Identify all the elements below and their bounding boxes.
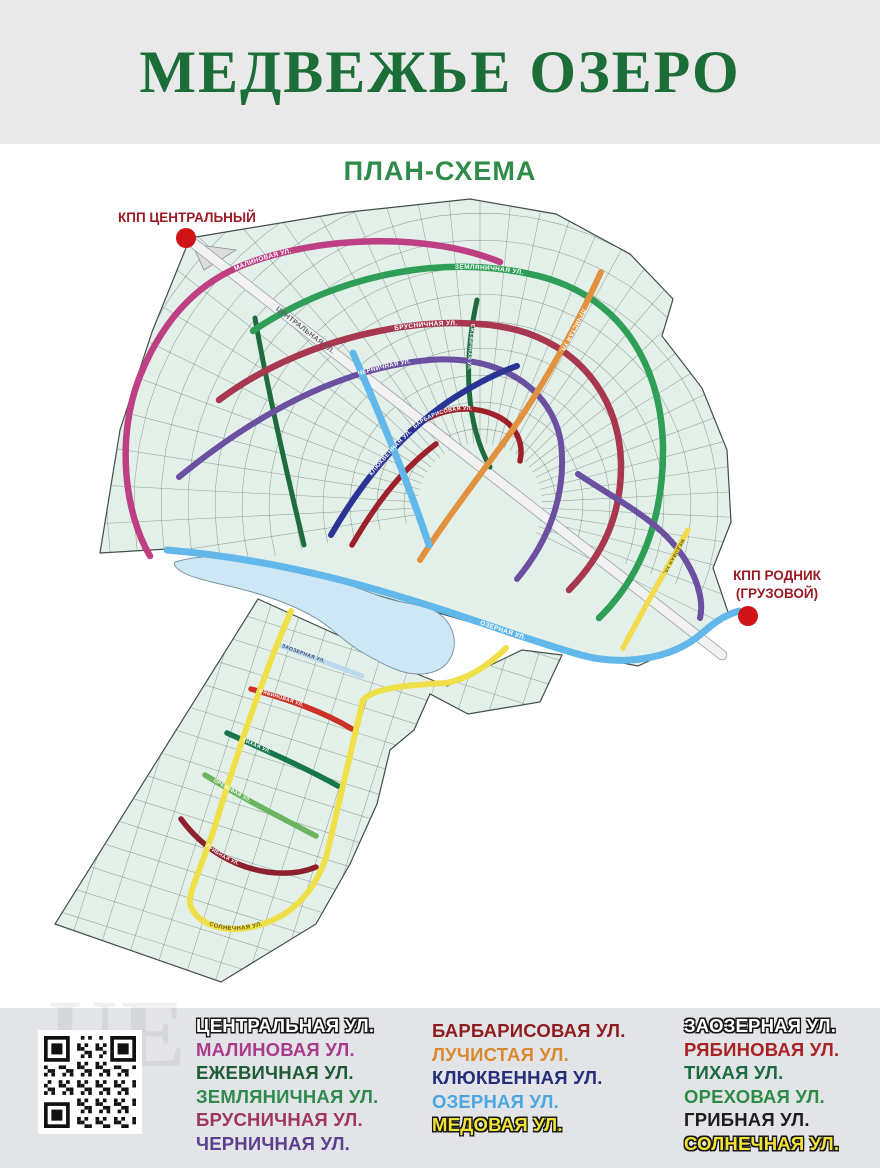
legend-item-chernichnaya: ЧЕРНИЧНАЯ УЛ. — [196, 1132, 378, 1156]
legend-item-luchistaya: ЛУЧИСТАЯ УЛ. — [432, 1043, 626, 1067]
legend-column-2: БАРБАРИСОВАЯ УЛ.ЛУЧИСТАЯ УЛ.КЛЮКВЕННАЯ У… — [432, 1019, 626, 1137]
legend-item-malinovaya: МАЛИНОВАЯ УЛ. — [196, 1038, 378, 1062]
kpp-rodnik-label-line1: КПП РОДНИК — [733, 568, 822, 583]
legend-column-3: ЗАОЗЕРНАЯ УЛ.РЯБИНОВАЯ УЛ.ТИХАЯ УЛ.ОРЕХО… — [684, 1014, 839, 1155]
qr-code — [38, 1030, 142, 1134]
legend-item-medovaya: МЕДОВАЯ УЛ. — [432, 1113, 626, 1137]
legend-item-orehovaya: ОРЕХОВАЯ УЛ. — [684, 1085, 839, 1109]
legend-item-ezhevichnaya: ЕЖЕВИЧНАЯ УЛ. — [196, 1061, 378, 1085]
legend-item-brusnichnaya: БРУСНИЧНАЯ УЛ. — [196, 1108, 378, 1132]
legend-item-centralnaya: ЦЕНТРАЛЬНАЯ УЛ. — [196, 1014, 378, 1038]
qr-code-pattern — [44, 1036, 136, 1128]
kpp-rodnik-dot — [738, 606, 758, 626]
legend-item-barbarisovaya: БАРБАРИСОВАЯ УЛ. — [432, 1019, 626, 1043]
legend-item-gribnaya: ГРИБНАЯ УЛ. — [684, 1108, 839, 1132]
legend-item-klyukvennaya: КЛЮКВЕННАЯ УЛ. — [432, 1066, 626, 1090]
kpp-rodnik-label-line2: (ГРУЗОВОЙ) — [736, 586, 818, 601]
legend-column-1: ЦЕНТРАЛЬНАЯ УЛ.МАЛИНОВАЯ УЛ.ЕЖЕВИЧНАЯ УЛ… — [196, 1014, 378, 1155]
legend-item-solnechnaya: СОЛНЕЧНАЯ УЛ. — [684, 1132, 839, 1156]
plan-map: ЦЕНТРАЛЬНАЯ УЛ.МАЛИНОВАЯ УЛ.ЕЖЕВИЧНАЯ УЛ… — [0, 0, 880, 1168]
legend-item-ozernaya: ОЗЕРНАЯ УЛ. — [432, 1090, 626, 1114]
legend-item-zaozernaya: ЗАОЗЕРНАЯ УЛ. — [684, 1014, 839, 1038]
kpp-central-label: КПП ЦЕНТРАЛЬНЫЙ — [118, 210, 256, 225]
page: МЕДВЕЖЬЕ ОЗЕРО ПЛАН-СХЕМА ЦЕНТРАЛЬНАЯ УЛ… — [0, 0, 880, 1168]
legend-item-tihaya: ТИХАЯ УЛ. — [684, 1061, 839, 1085]
kpp-central-dot — [176, 228, 196, 248]
legend-item-ryabinovaya: РЯБИНОВАЯ УЛ. — [684, 1038, 839, 1062]
legend-item-zemlyanichnaya: ЗЕМЛЯНИЧНАЯ УЛ. — [196, 1085, 378, 1109]
